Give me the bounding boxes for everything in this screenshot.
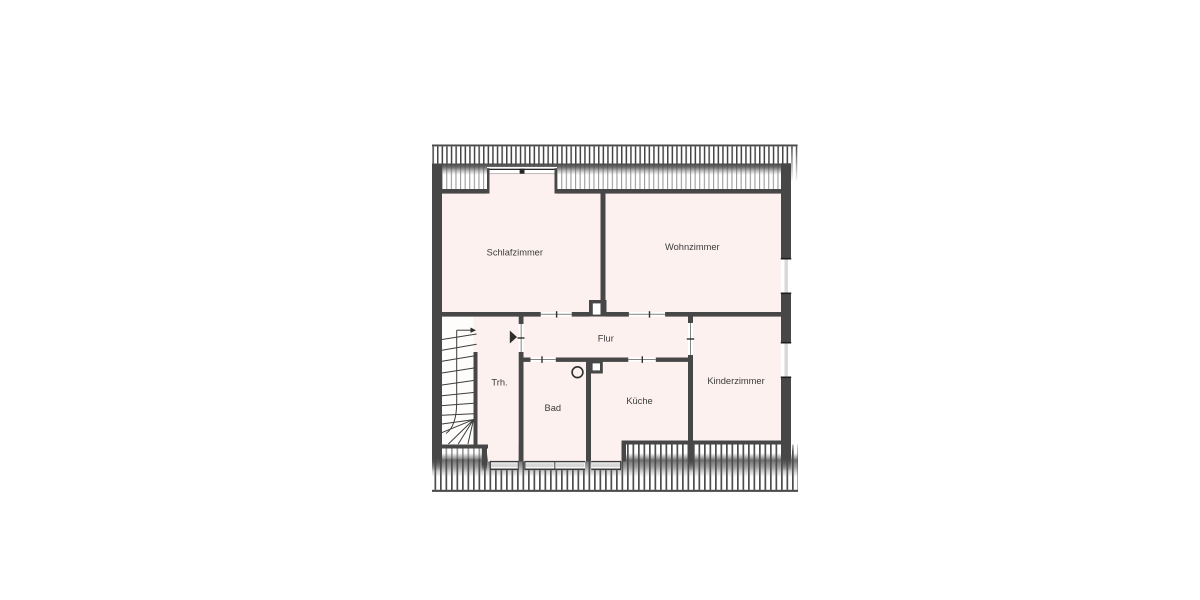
svg-text:Wohnzimmer: Wohnzimmer: [665, 242, 720, 252]
svg-text:Trh.: Trh.: [491, 377, 507, 387]
svg-text:Bad: Bad: [545, 403, 562, 413]
svg-text:Schlafzimmer: Schlafzimmer: [487, 248, 543, 258]
svg-text:Kinderzimmer: Kinderzimmer: [707, 376, 764, 386]
svg-text:Flur: Flur: [598, 334, 614, 344]
svg-text:Küche: Küche: [626, 396, 652, 406]
